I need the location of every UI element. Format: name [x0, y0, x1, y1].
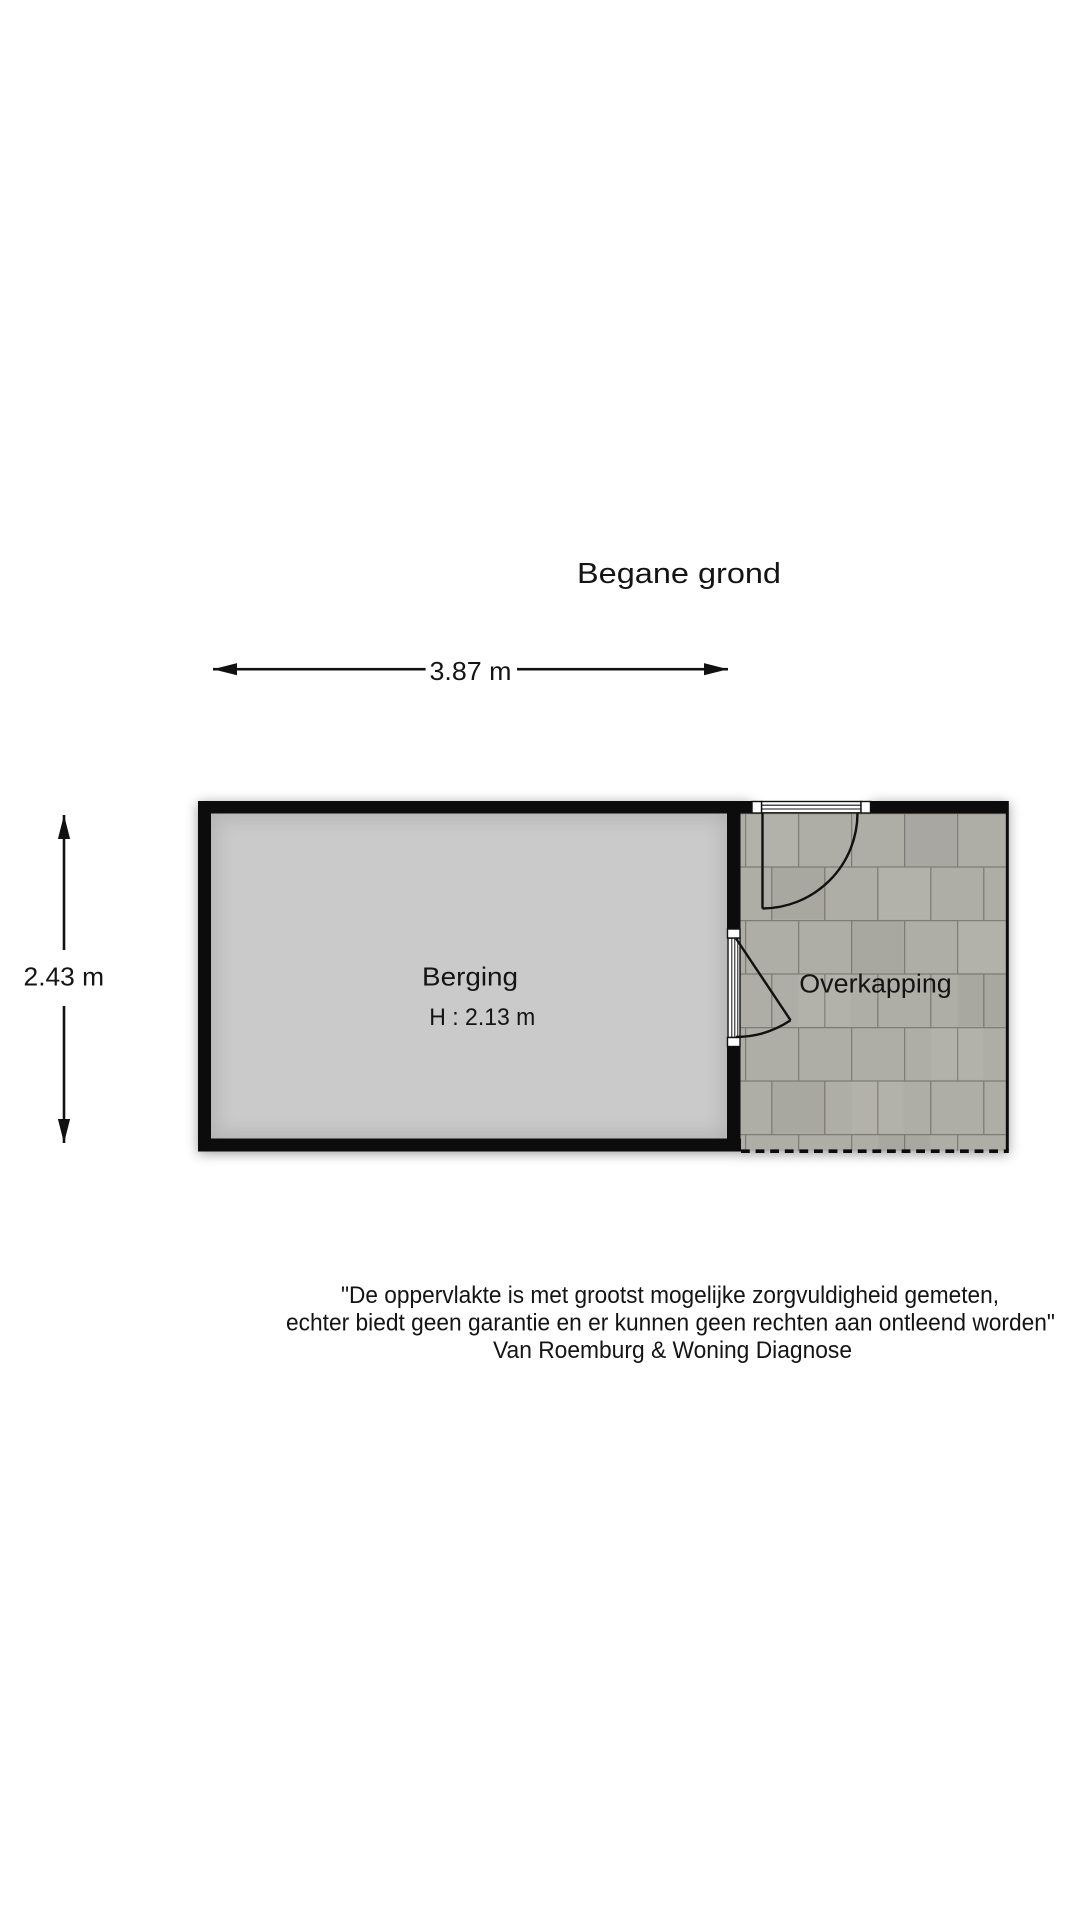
svg-text:H : 2.13 m: H : 2.13 m — [429, 1004, 535, 1031]
svg-text:2.43 m: 2.43 m — [24, 962, 105, 992]
svg-text:Berging: Berging — [422, 962, 518, 992]
svg-text:Overkapping: Overkapping — [799, 971, 952, 999]
svg-text:Van Roemburg & Woning Diagnose: Van Roemburg & Woning Diagnose — [493, 1337, 852, 1364]
svg-text:echter biedt geen garantie en: echter biedt geen garantie en er kunnen … — [286, 1310, 1055, 1337]
svg-text:3.87 m: 3.87 m — [430, 656, 512, 686]
svg-text:"De oppervlakte is met grootst: "De oppervlakte is met grootst mogelijke… — [341, 1282, 999, 1309]
svg-text:Begane grond: Begane grond — [577, 558, 781, 590]
